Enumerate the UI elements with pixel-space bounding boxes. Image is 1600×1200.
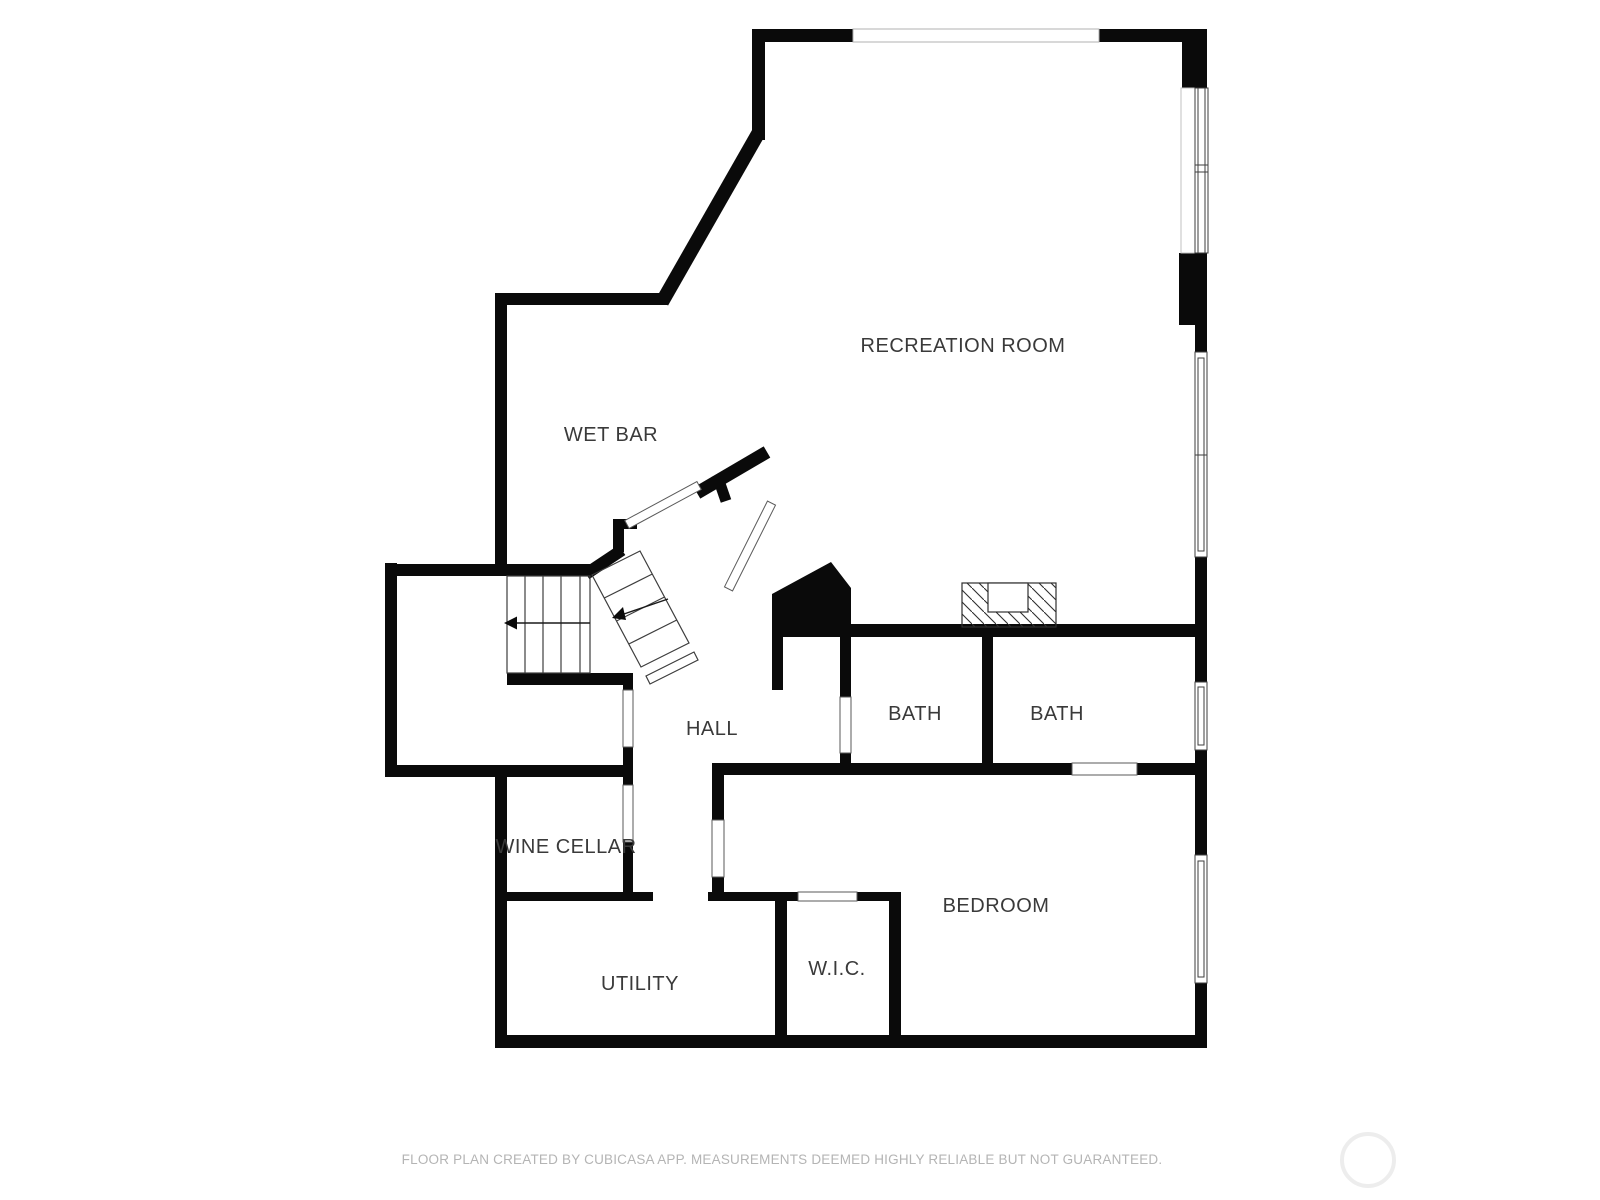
windows bbox=[853, 29, 1208, 983]
door-opening-bedroom bbox=[712, 820, 724, 877]
window-icon-right-2 bbox=[1195, 352, 1207, 557]
door-opening-hall-right bbox=[724, 501, 775, 591]
wall-wedge bbox=[772, 562, 851, 637]
fireplace-icon bbox=[962, 583, 1056, 627]
door-opening-storage bbox=[623, 690, 633, 747]
room-label-wine-cellar: WINE CELLAR bbox=[495, 836, 636, 858]
door-opening-wine-cellar bbox=[623, 785, 633, 842]
room-label-wic: W.I.C. bbox=[808, 958, 865, 980]
door-opening-wic bbox=[798, 892, 857, 901]
floor-plan-page: RECREATION ROOM WET BAR HALL BATH BATH W… bbox=[0, 0, 1600, 1200]
footer-disclaimer: FLOOR PLAN CREATED BY CUBICASA APP. MEAS… bbox=[402, 1152, 1163, 1167]
room-label-bath-1: BATH bbox=[888, 703, 942, 725]
room-label-bedroom: BEDROOM bbox=[943, 895, 1050, 917]
window-icon-right-3 bbox=[1195, 682, 1207, 750]
room-label-recreation: RECREATION ROOM bbox=[861, 335, 1066, 357]
room-label-utility: UTILITY bbox=[601, 973, 679, 995]
window-icon-right-1 bbox=[1181, 88, 1208, 253]
room-label-bath-2: BATH bbox=[1030, 703, 1084, 725]
cubicasa-logo-icon bbox=[1342, 1134, 1394, 1186]
interior-walls bbox=[507, 452, 1207, 1041]
stair-flight-straight bbox=[507, 576, 590, 673]
door-opening-bath2 bbox=[1072, 763, 1137, 775]
stair-direction-arrow-icon bbox=[504, 617, 517, 630]
stair-landing-edge bbox=[646, 652, 698, 684]
room-label-hall: HALL bbox=[686, 718, 738, 740]
door-opening-bath1 bbox=[840, 697, 851, 753]
stair-direction-arrow-icon bbox=[612, 607, 626, 620]
floor-plan-canvas: RECREATION ROOM WET BAR HALL BATH BATH W… bbox=[0, 0, 1600, 1200]
window-icon-top bbox=[853, 29, 1099, 42]
room-label-wet-bar: WET BAR bbox=[564, 424, 658, 446]
door-opening-hall-left bbox=[625, 482, 701, 529]
window-icon-right-4 bbox=[1195, 855, 1207, 983]
doors bbox=[623, 482, 1137, 901]
